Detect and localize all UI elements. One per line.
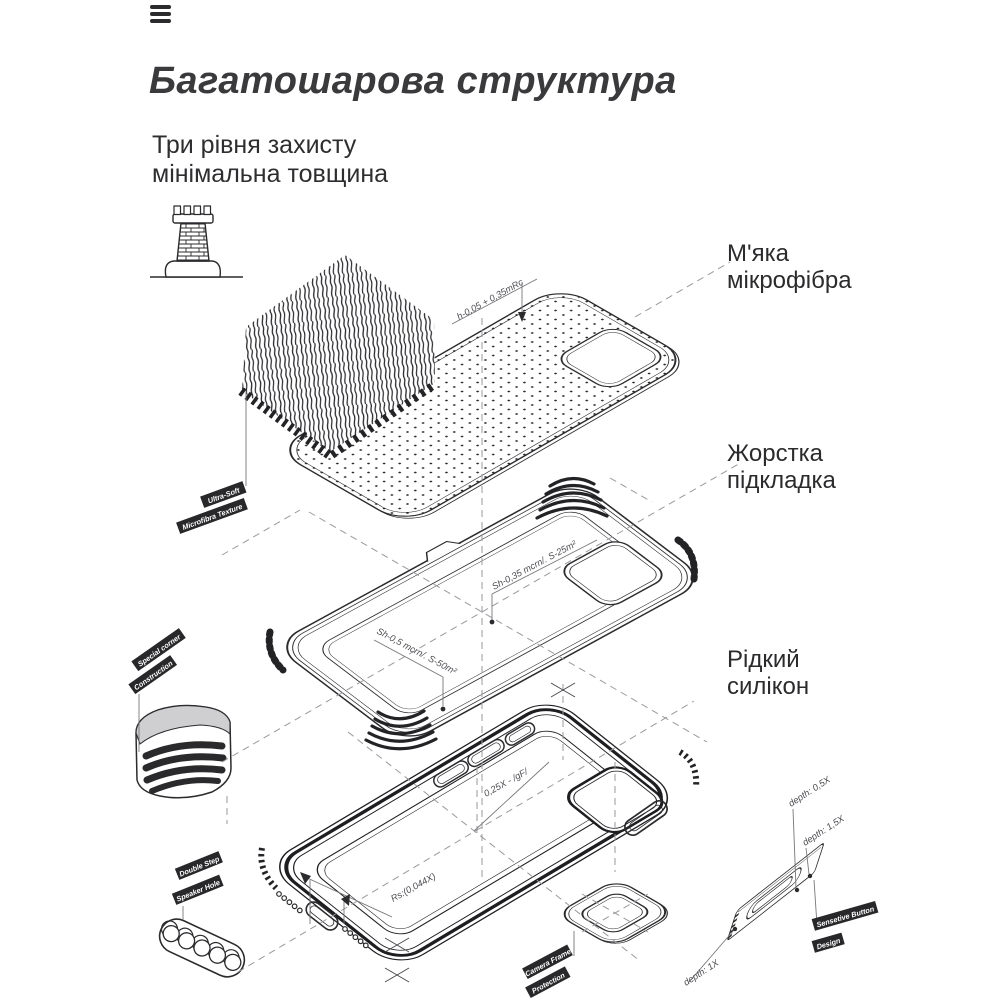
tag-sensetive-button: Sensetive Button: [812, 901, 879, 931]
svg-text:Microfibra Texture: Microfibra Texture: [181, 502, 244, 532]
tag-design: Design: [812, 933, 845, 953]
annotation-depth-1: depth: 1X: [682, 957, 721, 987]
side-button-detail: [727, 842, 824, 941]
annotation-depth-15: depth: 1,5X: [801, 813, 847, 848]
speaker-hole-detail: [154, 913, 250, 982]
exploded-case-diagram: h-0,05 + 0,35mRc Sh-0,35 mcrn/. S-25m² S…: [0, 0, 1000, 1000]
castle-tower-icon: [150, 206, 243, 277]
tag-double-step: Double Step: [175, 851, 223, 880]
annotation-depth-05: depth: 0,5X: [787, 774, 833, 809]
infographic-page: Багатошарова структура Три рівня захисту…: [0, 0, 1000, 1000]
svg-text:Design: Design: [816, 936, 842, 952]
layer-hard-lining: [266, 475, 707, 745]
corner-construction-detail: [136, 706, 231, 798]
